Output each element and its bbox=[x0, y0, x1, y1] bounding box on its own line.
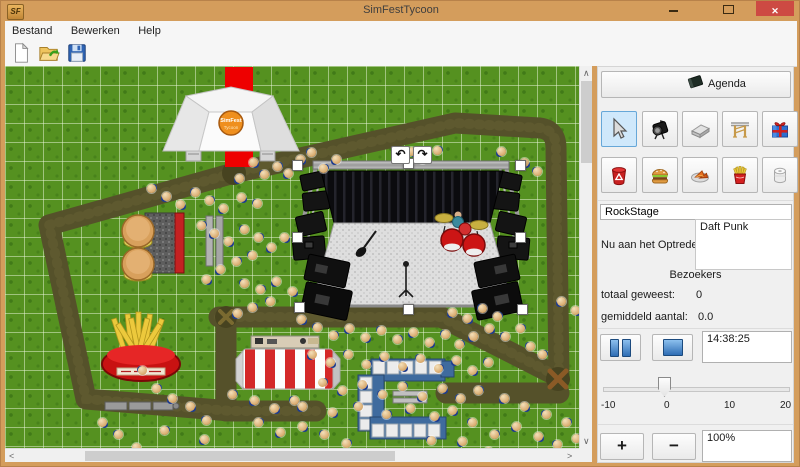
selection-handle-se[interactable] bbox=[517, 304, 528, 315]
gift-icon bbox=[768, 117, 792, 141]
festival-visitor bbox=[342, 439, 351, 448]
selection-handle-nw[interactable] bbox=[292, 160, 303, 171]
festival-visitor bbox=[318, 378, 327, 387]
burger-stand[interactable] bbox=[122, 213, 223, 281]
horizontal-scroll-thumb[interactable] bbox=[85, 451, 395, 461]
svg-text:Tycoon: Tycoon bbox=[224, 125, 239, 130]
speaker-stack-left bbox=[300, 254, 352, 321]
festival-visitor bbox=[441, 330, 450, 339]
speed-slider-thumb[interactable] bbox=[658, 377, 671, 397]
festival-visitor bbox=[500, 394, 509, 403]
festival-visitor bbox=[240, 279, 249, 288]
map-canvas[interactable]: SimFest Tycoon bbox=[5, 66, 579, 448]
festival-visitor bbox=[307, 148, 316, 157]
stop-icon bbox=[663, 339, 683, 356]
festival-visitor bbox=[254, 233, 263, 242]
festival-visitor bbox=[272, 277, 281, 286]
festival-visitor bbox=[138, 366, 147, 375]
festival-visitor bbox=[425, 338, 434, 347]
festival-visitor bbox=[202, 416, 211, 425]
festival-visitor bbox=[416, 354, 425, 363]
festival-visitor bbox=[147, 184, 156, 193]
festival-visitor bbox=[534, 432, 543, 441]
toolbar bbox=[5, 40, 797, 67]
festival-visitor bbox=[398, 362, 407, 371]
menubar: Bestand Bewerken Help bbox=[5, 21, 797, 41]
tool-snack-button[interactable] bbox=[682, 157, 718, 193]
festival-visitor bbox=[319, 164, 328, 173]
pause-button[interactable] bbox=[600, 334, 641, 361]
festival-visitor bbox=[270, 404, 279, 413]
slider-tick-0: 0 bbox=[664, 400, 670, 411]
festival-visitor bbox=[186, 402, 195, 411]
festival-visitor bbox=[320, 430, 329, 439]
festival-visitor bbox=[219, 204, 228, 213]
selection-handle-sw[interactable] bbox=[294, 302, 305, 313]
festival-visitor bbox=[478, 304, 487, 313]
festival-visitor bbox=[434, 364, 443, 373]
festival-visitor bbox=[216, 265, 225, 274]
minimize-icon bbox=[669, 10, 678, 12]
selection-handle-e[interactable] bbox=[515, 232, 526, 243]
festival-visitor bbox=[493, 312, 502, 321]
vertical-scroll-thumb[interactable] bbox=[581, 81, 592, 163]
festival-visitor bbox=[382, 410, 391, 419]
now-playing-box[interactable]: Daft Punk bbox=[695, 219, 792, 270]
menu-bestand[interactable]: Bestand bbox=[5, 22, 59, 37]
festival-visitor bbox=[235, 174, 244, 183]
new-file-icon[interactable] bbox=[10, 42, 32, 64]
festival-visitor bbox=[326, 358, 335, 367]
festival-visitor bbox=[501, 332, 510, 341]
truss-icon bbox=[728, 117, 752, 141]
tool-spotlight-button[interactable] bbox=[642, 111, 678, 147]
festival-visitor bbox=[438, 384, 447, 393]
festival-visitor bbox=[224, 237, 233, 246]
festival-visitor bbox=[409, 328, 418, 337]
visitors-header: Bezoekers bbox=[598, 269, 793, 281]
festival-visitor bbox=[344, 350, 353, 359]
tool-stage-button[interactable] bbox=[682, 111, 718, 147]
now-playing-value: Daft Punk bbox=[700, 221, 748, 233]
slider-tick-10: 10 bbox=[724, 400, 735, 411]
stage-platform-icon bbox=[688, 117, 712, 141]
festival-visitor bbox=[248, 251, 257, 260]
festival-visitor bbox=[191, 188, 200, 197]
festival-visitor bbox=[562, 418, 571, 427]
festival-visitor bbox=[572, 434, 579, 443]
festival-visitor bbox=[152, 384, 161, 393]
festival-visitor bbox=[361, 333, 370, 342]
tent-logo: SimFest Tycoon bbox=[219, 111, 243, 135]
festival-visitor bbox=[329, 331, 338, 340]
separator bbox=[598, 200, 793, 201]
festival-visitor bbox=[526, 342, 535, 351]
festival-visitor bbox=[542, 410, 551, 419]
vertical-scrollbar[interactable]: ∧ ∨ bbox=[579, 66, 592, 448]
festival-visitor bbox=[200, 435, 209, 444]
festival-visitor bbox=[474, 386, 483, 395]
festival-visitor bbox=[512, 422, 521, 431]
festival-visitor bbox=[458, 437, 467, 446]
zoom-level-value: 100% bbox=[707, 432, 735, 444]
agenda-book-icon bbox=[684, 72, 708, 92]
trash-can-icon bbox=[607, 163, 631, 187]
festival-visitor bbox=[497, 147, 506, 156]
total-visitors-label: totaal geweest: bbox=[601, 289, 675, 301]
scroll-left-icon[interactable]: < bbox=[9, 451, 14, 461]
selection-handle-s[interactable] bbox=[403, 304, 414, 315]
festival-visitor bbox=[452, 356, 461, 365]
festival-visitor bbox=[393, 335, 402, 344]
festival-visitor bbox=[256, 285, 265, 294]
tool-trash-button[interactable] bbox=[601, 157, 637, 193]
festival-visitor bbox=[448, 406, 457, 415]
festival-visitor bbox=[418, 392, 427, 401]
save-file-icon[interactable] bbox=[66, 42, 88, 64]
festival-visitor bbox=[430, 412, 439, 421]
festival-visitor bbox=[232, 257, 241, 266]
stage-name-input[interactable] bbox=[600, 204, 792, 220]
festival-visitor bbox=[378, 390, 387, 399]
menu-help[interactable]: Help bbox=[131, 22, 168, 37]
festival-visitor bbox=[484, 358, 493, 367]
festival-visitor bbox=[362, 360, 371, 369]
festival-visitor bbox=[162, 192, 171, 201]
close-icon: ✕ bbox=[771, 6, 779, 16]
festival-visitor bbox=[354, 402, 363, 411]
total-visitors-value: 0 bbox=[696, 289, 702, 301]
snack-plate-icon bbox=[688, 163, 712, 187]
tool-gift-button[interactable] bbox=[762, 111, 798, 147]
stage-curtain bbox=[321, 171, 503, 223]
fries-icon bbox=[728, 163, 752, 187]
festival-visitor bbox=[455, 340, 464, 349]
app-window: SF SimFestTycoon ✕ Bestand Bewerken Help bbox=[0, 0, 800, 467]
scroll-up-icon[interactable]: ∧ bbox=[583, 68, 590, 78]
zoom-in-button[interactable]: + bbox=[600, 433, 644, 460]
festival-visitor bbox=[469, 332, 478, 341]
agenda-label: Agenda bbox=[708, 72, 746, 97]
festival-visitor bbox=[273, 162, 282, 171]
bench bbox=[105, 402, 179, 410]
festival-visitor bbox=[237, 193, 246, 202]
festival-visitor bbox=[297, 315, 306, 324]
open-file-icon[interactable] bbox=[38, 42, 60, 64]
main-stage[interactable] bbox=[292, 161, 530, 321]
speed-slider-track[interactable] bbox=[603, 387, 790, 392]
festival-visitor bbox=[298, 422, 307, 431]
festival-visitor bbox=[276, 428, 285, 437]
spotlight-icon bbox=[648, 117, 672, 141]
toilet-roll-icon bbox=[768, 163, 792, 187]
burger-icon bbox=[648, 163, 672, 187]
scrollbar-corner bbox=[579, 448, 592, 462]
entrance-tent[interactable]: SimFest Tycoon bbox=[163, 87, 299, 161]
festival-visitor bbox=[288, 287, 297, 296]
festival-visitor bbox=[338, 386, 347, 395]
festival-visitor bbox=[205, 196, 214, 205]
festival-visitor bbox=[250, 396, 259, 405]
festival-visitor bbox=[228, 390, 237, 399]
selection-handle-w[interactable] bbox=[292, 232, 303, 243]
festival-visitor bbox=[490, 430, 499, 439]
festival-visitor bbox=[516, 324, 525, 333]
festival-visitor bbox=[398, 382, 407, 391]
tool-fries-button[interactable] bbox=[722, 157, 758, 193]
festival-visitor bbox=[485, 324, 494, 333]
svg-text:SimFest: SimFest bbox=[220, 118, 242, 124]
separator bbox=[598, 328, 793, 329]
festival-visitor bbox=[210, 229, 219, 238]
festival-visitor bbox=[538, 350, 547, 359]
festival-visitor bbox=[520, 402, 529, 411]
scroll-down-icon[interactable]: ∨ bbox=[583, 436, 590, 446]
festival-visitor bbox=[266, 297, 275, 306]
festival-visitor bbox=[313, 323, 322, 332]
festival-visitor bbox=[358, 380, 367, 389]
minimize-button[interactable] bbox=[661, 1, 687, 16]
menu-bewerken[interactable]: Bewerken bbox=[64, 22, 127, 37]
festival-visitor bbox=[448, 308, 457, 317]
zoom-level-display[interactable]: 100% bbox=[702, 430, 792, 462]
festival-visitor bbox=[557, 297, 566, 306]
scroll-right-icon[interactable]: > bbox=[567, 451, 572, 461]
festival-visitor bbox=[260, 170, 269, 179]
tool-select-button[interactable] bbox=[601, 111, 637, 147]
festival-visitor bbox=[168, 394, 177, 403]
festival-visitor bbox=[456, 394, 465, 403]
festival-visitor bbox=[571, 306, 579, 315]
cursor-icon bbox=[607, 117, 631, 141]
festival-visitor bbox=[380, 352, 389, 361]
festival-visitor bbox=[98, 418, 107, 427]
maximize-button[interactable] bbox=[715, 1, 741, 16]
festival-visitor bbox=[377, 326, 386, 335]
time-display[interactable]: 14:38:25 bbox=[702, 331, 792, 363]
festival-visitor bbox=[308, 350, 317, 359]
slider-tick--10: -10 bbox=[601, 400, 615, 411]
festival-visitor bbox=[345, 324, 354, 333]
festival-visitor bbox=[280, 233, 289, 242]
rotate-left-button[interactable]: ↶ bbox=[391, 146, 410, 164]
rotate-right-button[interactable]: ↷ bbox=[413, 146, 432, 164]
festival-visitor bbox=[468, 366, 477, 375]
festival-visitor bbox=[160, 426, 169, 435]
maximize-icon bbox=[723, 5, 734, 14]
avg-visitors-value: 0.0 bbox=[698, 311, 713, 323]
pause-icon bbox=[610, 339, 619, 357]
festival-visitor bbox=[233, 309, 242, 318]
festival-visitor bbox=[328, 408, 337, 417]
festival-visitor bbox=[249, 158, 258, 167]
festival-visitor bbox=[197, 221, 206, 230]
selection-handle-ne[interactable] bbox=[515, 160, 526, 171]
festival-visitor bbox=[332, 155, 341, 164]
festival-visitor bbox=[406, 404, 415, 413]
horizontal-scrollbar[interactable]: < > bbox=[5, 448, 579, 462]
festival-visitor bbox=[114, 430, 123, 439]
festival-visitor bbox=[240, 225, 249, 234]
festival-scene: SimFest Tycoon bbox=[5, 66, 579, 448]
festival-visitor bbox=[176, 200, 185, 209]
festival-visitor bbox=[290, 396, 299, 405]
festival-visitor bbox=[463, 314, 472, 323]
tool-burger-button[interactable] bbox=[642, 157, 678, 193]
stop-button[interactable] bbox=[652, 334, 693, 361]
slider-tick-20: 20 bbox=[780, 400, 791, 411]
festival-visitor bbox=[427, 436, 436, 445]
time-value: 14:38:25 bbox=[707, 333, 750, 345]
festival-visitor bbox=[433, 146, 442, 155]
titlebar[interactable]: SF SimFestTycoon ✕ bbox=[1, 1, 800, 21]
festival-visitor bbox=[267, 243, 276, 252]
avg-visitors-label: gemiddeld aantal: bbox=[601, 311, 688, 323]
festival-visitor bbox=[468, 418, 477, 427]
festival-visitor bbox=[253, 199, 262, 208]
zoom-out-button[interactable]: − bbox=[652, 433, 696, 460]
festival-visitor bbox=[553, 440, 562, 448]
festival-visitor bbox=[533, 167, 542, 176]
tool-truss-button[interactable] bbox=[722, 111, 758, 147]
agenda-button[interactable]: Agenda bbox=[601, 71, 791, 98]
festival-visitor bbox=[248, 303, 257, 312]
separator bbox=[598, 424, 793, 425]
festival-visitor bbox=[254, 418, 263, 427]
control-panel: Agenda bbox=[597, 66, 794, 463]
festival-visitor bbox=[298, 402, 307, 411]
now-playing-label: Nu aan het Optreden: bbox=[601, 239, 707, 251]
festival-visitor bbox=[202, 275, 211, 284]
tool-toilet-roll-button[interactable] bbox=[762, 157, 798, 193]
close-button[interactable]: ✕ bbox=[756, 1, 794, 16]
